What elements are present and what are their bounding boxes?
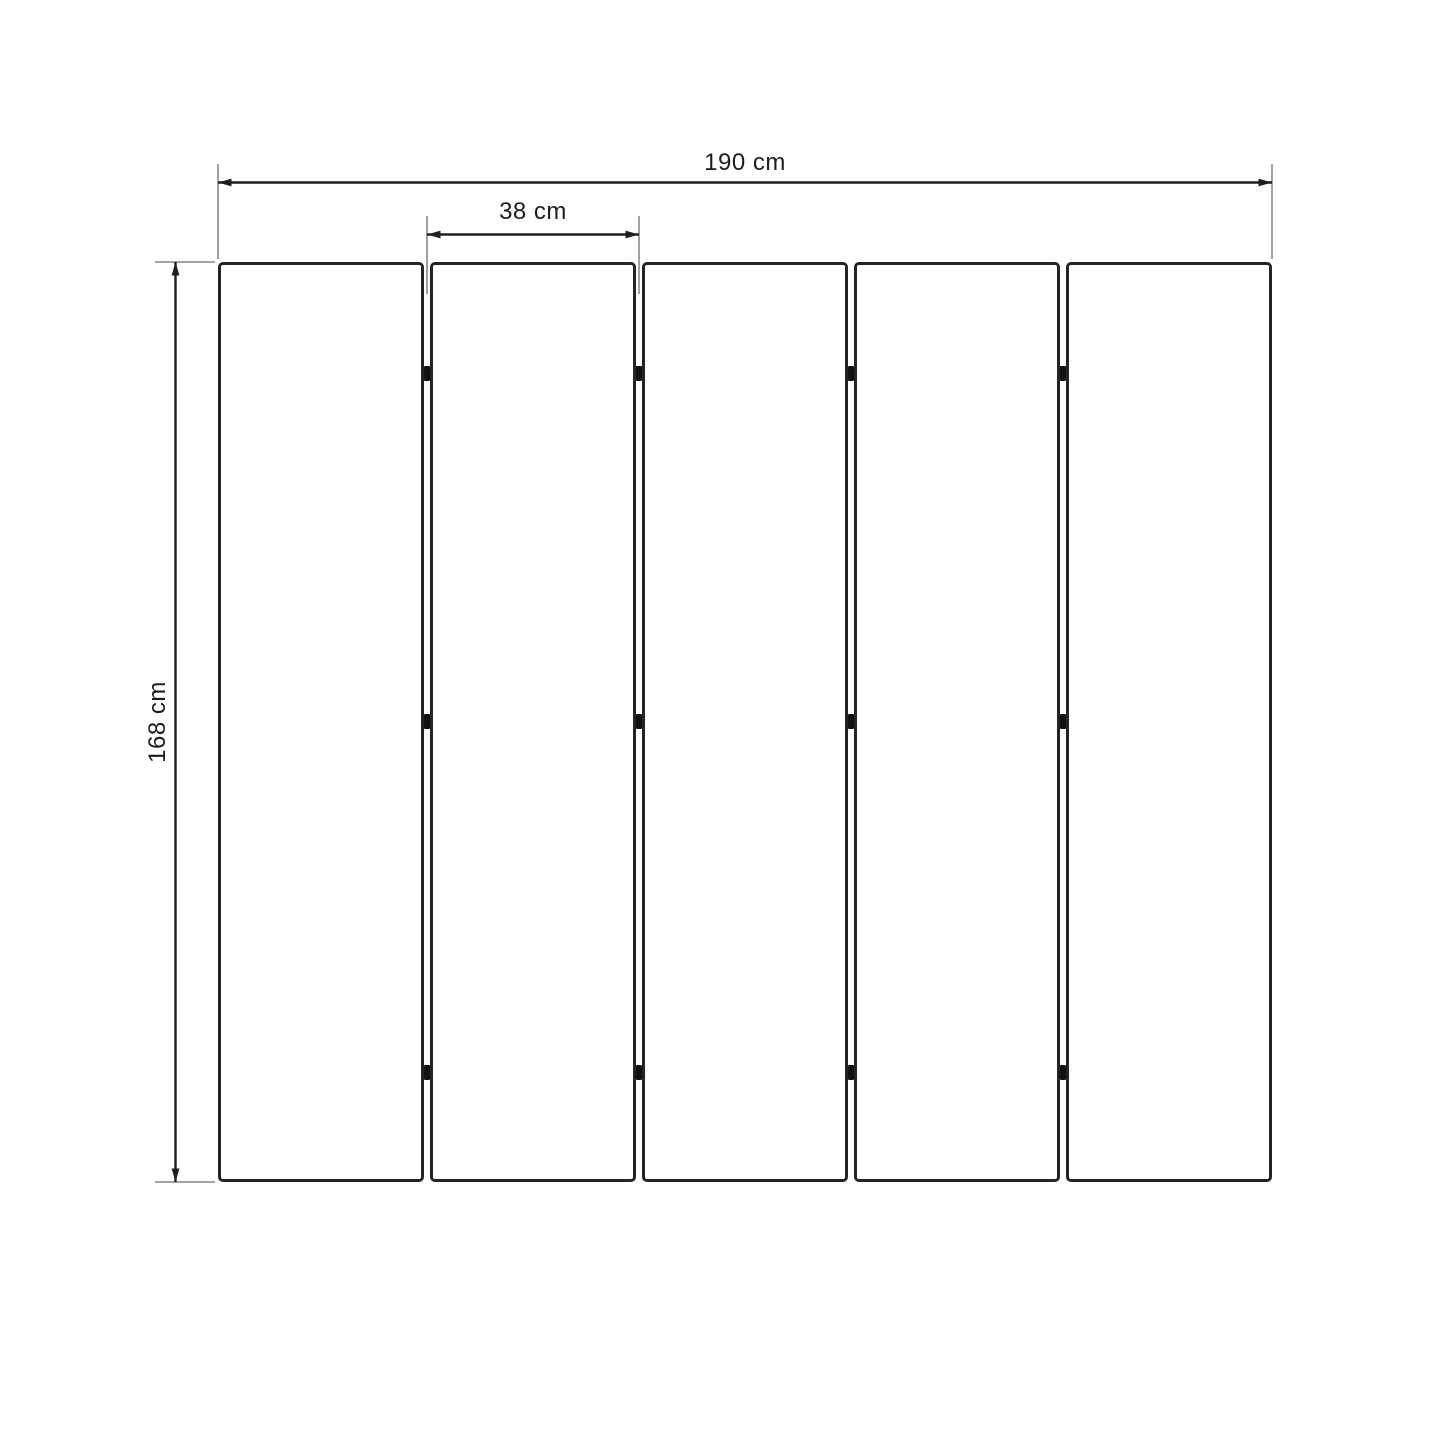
hinge: [424, 366, 430, 381]
hinge: [424, 714, 430, 729]
panel-width-label: 38 cm: [499, 198, 567, 225]
hinge: [1060, 714, 1066, 729]
panel-4: [854, 262, 1060, 1182]
panel-2: [430, 262, 636, 1182]
hinge: [636, 1065, 642, 1080]
panel-3: [642, 262, 848, 1182]
hinge: [636, 714, 642, 729]
hinge: [848, 1065, 854, 1080]
hinge: [1060, 1065, 1066, 1080]
panel-1: [218, 262, 424, 1182]
hinge: [636, 366, 642, 381]
total-width-label: 190 cm: [704, 149, 786, 176]
height-label: 168 cm: [144, 681, 171, 763]
hinge: [848, 714, 854, 729]
hinge: [848, 366, 854, 381]
hinge: [1060, 366, 1066, 381]
panel-5: [1066, 262, 1272, 1182]
dimension-diagram: 190 cm 38 cm 168 cm: [0, 0, 1445, 1445]
panel-row: [218, 262, 1272, 1182]
hinge: [424, 1065, 430, 1080]
